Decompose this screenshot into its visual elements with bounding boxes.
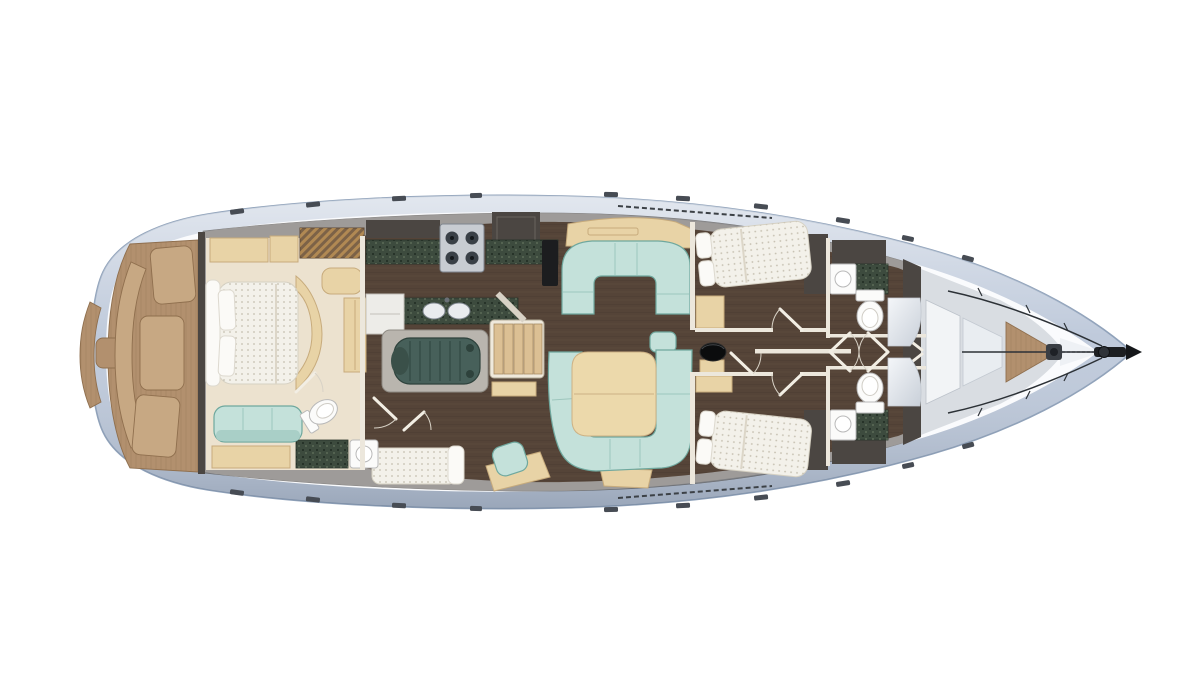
companionway-hatch — [300, 228, 364, 258]
tables — [572, 352, 656, 436]
galley-sink — [448, 303, 470, 319]
aft-bulkhead — [198, 232, 205, 474]
single-berth — [372, 448, 456, 484]
guest-shelf — [696, 296, 724, 328]
forepeak-bulkhead — [903, 259, 921, 445]
locker-panel — [926, 300, 960, 404]
guest-bed-port — [709, 220, 813, 288]
seat-pad — [131, 394, 180, 458]
head-locker — [832, 240, 886, 264]
stair-landing — [492, 382, 536, 396]
equipment — [542, 240, 558, 286]
pillow — [698, 260, 716, 286]
companionway-stairs — [490, 320, 544, 378]
starboard-toilet — [856, 373, 884, 413]
pillow — [695, 438, 713, 464]
guest-shelf — [696, 376, 732, 392]
pillow — [698, 410, 716, 436]
floor-plan-svg — [0, 0, 1200, 700]
galley-sink — [423, 303, 445, 319]
stove — [440, 224, 484, 272]
pillow — [218, 336, 236, 377]
faucet — [445, 298, 450, 303]
seat-pad — [140, 316, 184, 390]
stem-fitting — [1126, 344, 1142, 360]
port-basin — [835, 271, 851, 287]
yacht-floor-plan — [0, 0, 1200, 700]
white-appliance — [366, 294, 404, 334]
pillow — [218, 290, 236, 331]
engine — [391, 338, 480, 384]
owner-locker — [212, 446, 290, 468]
pillow — [448, 446, 464, 484]
galley-top-cabinet — [366, 220, 440, 238]
vanity — [322, 268, 362, 294]
owner-cabinet — [210, 238, 268, 262]
port-toilet — [856, 290, 884, 331]
seat-pad — [150, 245, 197, 304]
starboard-basin — [835, 416, 851, 432]
sofa-corner — [650, 332, 676, 352]
guest-bed-starboard — [709, 410, 813, 478]
mast — [700, 343, 726, 361]
pillow — [695, 232, 713, 258]
owner-cabinet — [270, 236, 298, 262]
head-locker — [832, 440, 886, 464]
